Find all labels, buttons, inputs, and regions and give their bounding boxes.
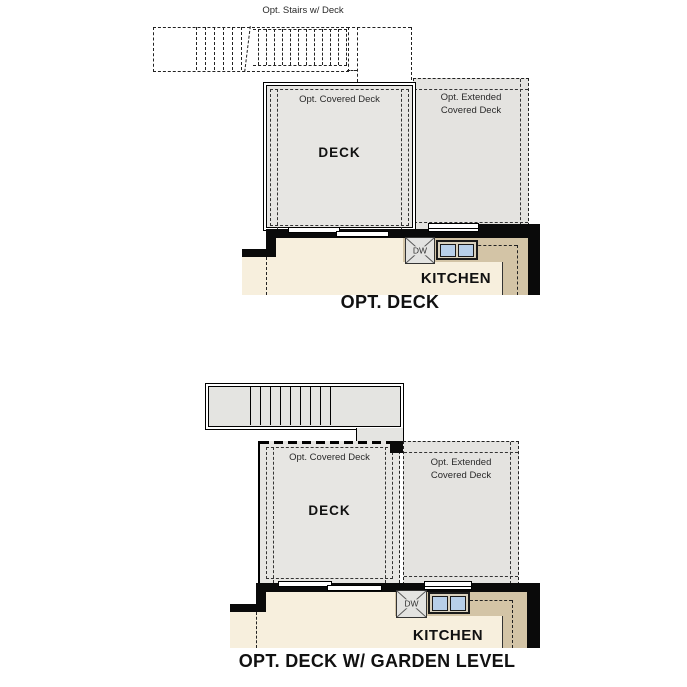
floorplan-canvas: Opt. Stairs w/ Deck Opt. Extended Covere… (0, 0, 687, 687)
counter-front-edge (502, 616, 503, 648)
window-mullion (429, 228, 478, 229)
kitchen-counter-side (503, 616, 528, 648)
figure2-title: OPT. DECK W/ GARDEN LEVEL (187, 651, 567, 672)
extended-deck-label: Opt. Extended Covered Deck (414, 91, 528, 117)
kitchen-sink (436, 240, 478, 260)
sliding-door-panel-1 (288, 227, 340, 233)
stair-tread-line (310, 386, 311, 425)
sliding-door-panel-2 (336, 231, 389, 237)
covered-deck-label: Opt. Covered Deck (264, 94, 415, 105)
stair-tread-line (306, 29, 307, 65)
dishwasher-label: DW (403, 599, 419, 608)
kitchen-floor-left (230, 612, 266, 648)
figure-opt-deck: Opt. Stairs w/ Deck Opt. Extended Covere… (0, 0, 687, 330)
stair-tread-line (274, 29, 275, 65)
kitchen-window (428, 223, 479, 232)
stair-tread-line (241, 27, 242, 70)
stair-tread-line (290, 29, 291, 65)
sink-basin-left (440, 244, 456, 257)
stair-tread-line (314, 29, 315, 65)
deck-corner-post (390, 441, 403, 453)
stair-tread-line (280, 386, 281, 425)
sink-basin-right (450, 596, 466, 611)
stair-tread-line (214, 27, 215, 70)
dishwasher: DW (396, 590, 427, 618)
stair-tread-line (300, 386, 301, 425)
opt-stairs-treads-lower (258, 29, 350, 65)
stair-tread-line (330, 29, 331, 65)
kitchen-label: KITCHEN (408, 270, 504, 287)
stair-tread-line (298, 29, 299, 65)
covered-deck-label: Opt. Covered Deck (260, 452, 399, 463)
counter-dashed-line-v (517, 245, 518, 295)
garden-stairs-treads (250, 386, 332, 425)
extended-covered-deck-area: Opt. Extended Covered Deck (413, 78, 529, 231)
figure-opt-deck-garden-level: Opt. Extended Covered Deck Opt. Covered … (0, 330, 687, 687)
stair-tread-line (346, 29, 347, 65)
left-wall (256, 583, 266, 612)
stairs-chute-right (411, 27, 412, 80)
deck-area: Opt. Covered Deck DECK (258, 441, 400, 583)
sliding-door-panel-1 (278, 581, 332, 587)
deck-heavy-dashed-top-edge (260, 441, 399, 444)
kitchen-label: KITCHEN (400, 627, 496, 644)
left-wall-dashed-continuation (256, 612, 257, 648)
kitchen-counter-side (503, 262, 528, 295)
figure1-title: OPT. DECK (300, 292, 480, 313)
counter-dashed-line-h (470, 600, 512, 601)
stair-tread-line (266, 29, 267, 65)
right-wall (528, 224, 540, 295)
window-mullion (425, 586, 471, 587)
left-wall-stub (230, 604, 256, 612)
stair-tread-line (250, 386, 251, 425)
counter-dashed-line-v (512, 600, 513, 648)
left-wall-dashed-continuation (266, 257, 267, 295)
stair-tread-line (260, 386, 261, 425)
deck-area: Opt. Covered Deck DECK (263, 82, 416, 231)
stair-tread-line (223, 27, 224, 70)
stair-tread-line (282, 29, 283, 65)
garden-stairs-extension (356, 428, 404, 441)
stair-tread-line (270, 386, 271, 425)
right-wall (527, 583, 540, 648)
dishwasher: DW (405, 237, 435, 264)
deck-label: DECK (260, 503, 399, 518)
stair-tread-line (205, 27, 206, 70)
stair-tread-line (196, 27, 197, 70)
kitchen-sink (428, 592, 470, 614)
sliding-door-panel-2 (327, 585, 382, 591)
stair-tread-line (258, 29, 259, 65)
kitchen-window (424, 581, 472, 590)
opt-stairs-treads-upper (196, 27, 248, 70)
stair-tread-line (290, 386, 291, 425)
stair-tread-line (232, 27, 233, 70)
opt-stairs-label: Opt. Stairs w/ Deck (233, 5, 373, 16)
extended-deck-inner-line-top (404, 452, 518, 453)
extended-deck-inner-line-top (414, 89, 528, 90)
sink-basin-left (432, 596, 448, 611)
stairs-run-bottom-line (253, 65, 347, 66)
extended-deck-inner-line-bottom (404, 576, 518, 577)
stair-tread-line (338, 29, 339, 65)
deck-label: DECK (264, 145, 415, 160)
stairs-chute-left (357, 27, 358, 82)
stair-tread-line (322, 29, 323, 65)
dishwasher-label: DW (412, 246, 428, 255)
stair-tread-line (320, 386, 321, 425)
extended-deck-label: Opt. Extended Covered Deck (404, 456, 518, 482)
stairs-chute-stub (347, 70, 357, 71)
kitchen-floor-left (242, 257, 276, 295)
stair-tread-line (330, 386, 331, 425)
extended-covered-deck-area: Opt. Extended Covered Deck (403, 441, 519, 585)
left-wall-stub (242, 249, 268, 257)
sink-basin-right (458, 244, 474, 257)
